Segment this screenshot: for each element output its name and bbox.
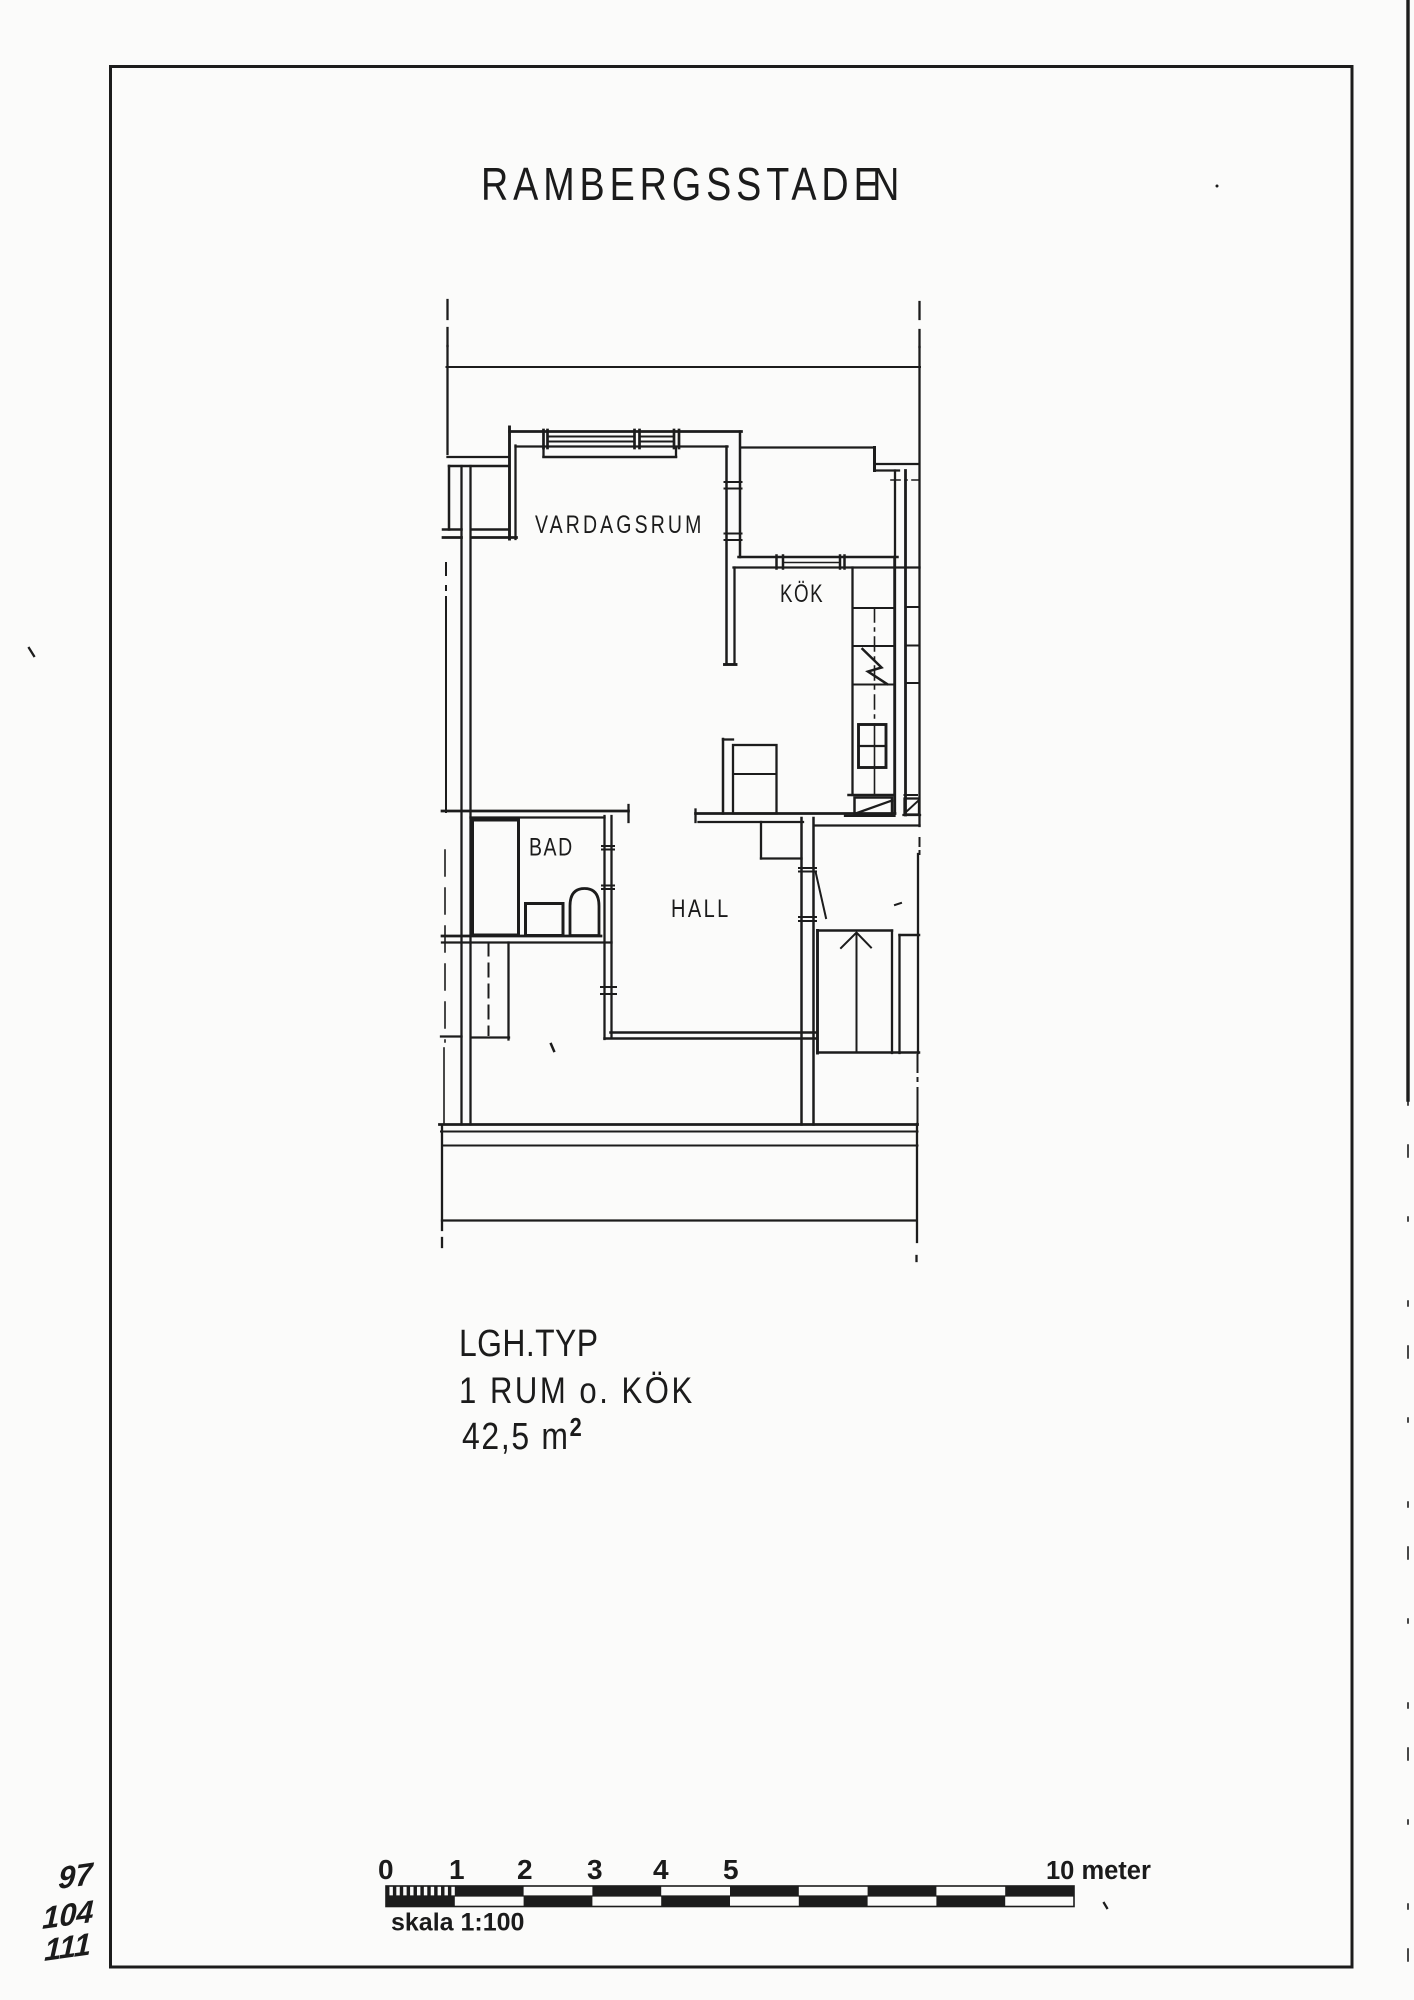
svg-text:4: 4 [653, 1854, 669, 1885]
svg-text:111: 111 [44, 1926, 92, 1968]
svg-text:skala 1:100: skala 1:100 [391, 1909, 524, 1937]
svg-text:HALL: HALL [671, 895, 731, 923]
svg-text:2: 2 [517, 1854, 533, 1885]
svg-text:KÖK: KÖK [780, 579, 824, 607]
svg-text:3: 3 [587, 1854, 603, 1885]
svg-text:1 RUM o. KÖK: 1 RUM o. KÖK [459, 1371, 695, 1412]
svg-text:LGH.TYP: LGH.TYP [459, 1322, 598, 1364]
svg-text:VARDAGSRUM: VARDAGSRUM [535, 511, 704, 539]
svg-text:RAMBERGSSTADEN: RAMBERGSSTADEN [481, 158, 904, 209]
svg-text:10 meter: 10 meter [1046, 1857, 1151, 1885]
svg-text:0: 0 [378, 1854, 394, 1885]
svg-text:42,5 m2: 42,5 m2 [462, 1413, 583, 1457]
svg-text:5: 5 [723, 1854, 739, 1885]
svg-text:97: 97 [58, 1856, 95, 1896]
svg-text:BAD: BAD [529, 833, 574, 861]
svg-text:1: 1 [449, 1854, 465, 1885]
